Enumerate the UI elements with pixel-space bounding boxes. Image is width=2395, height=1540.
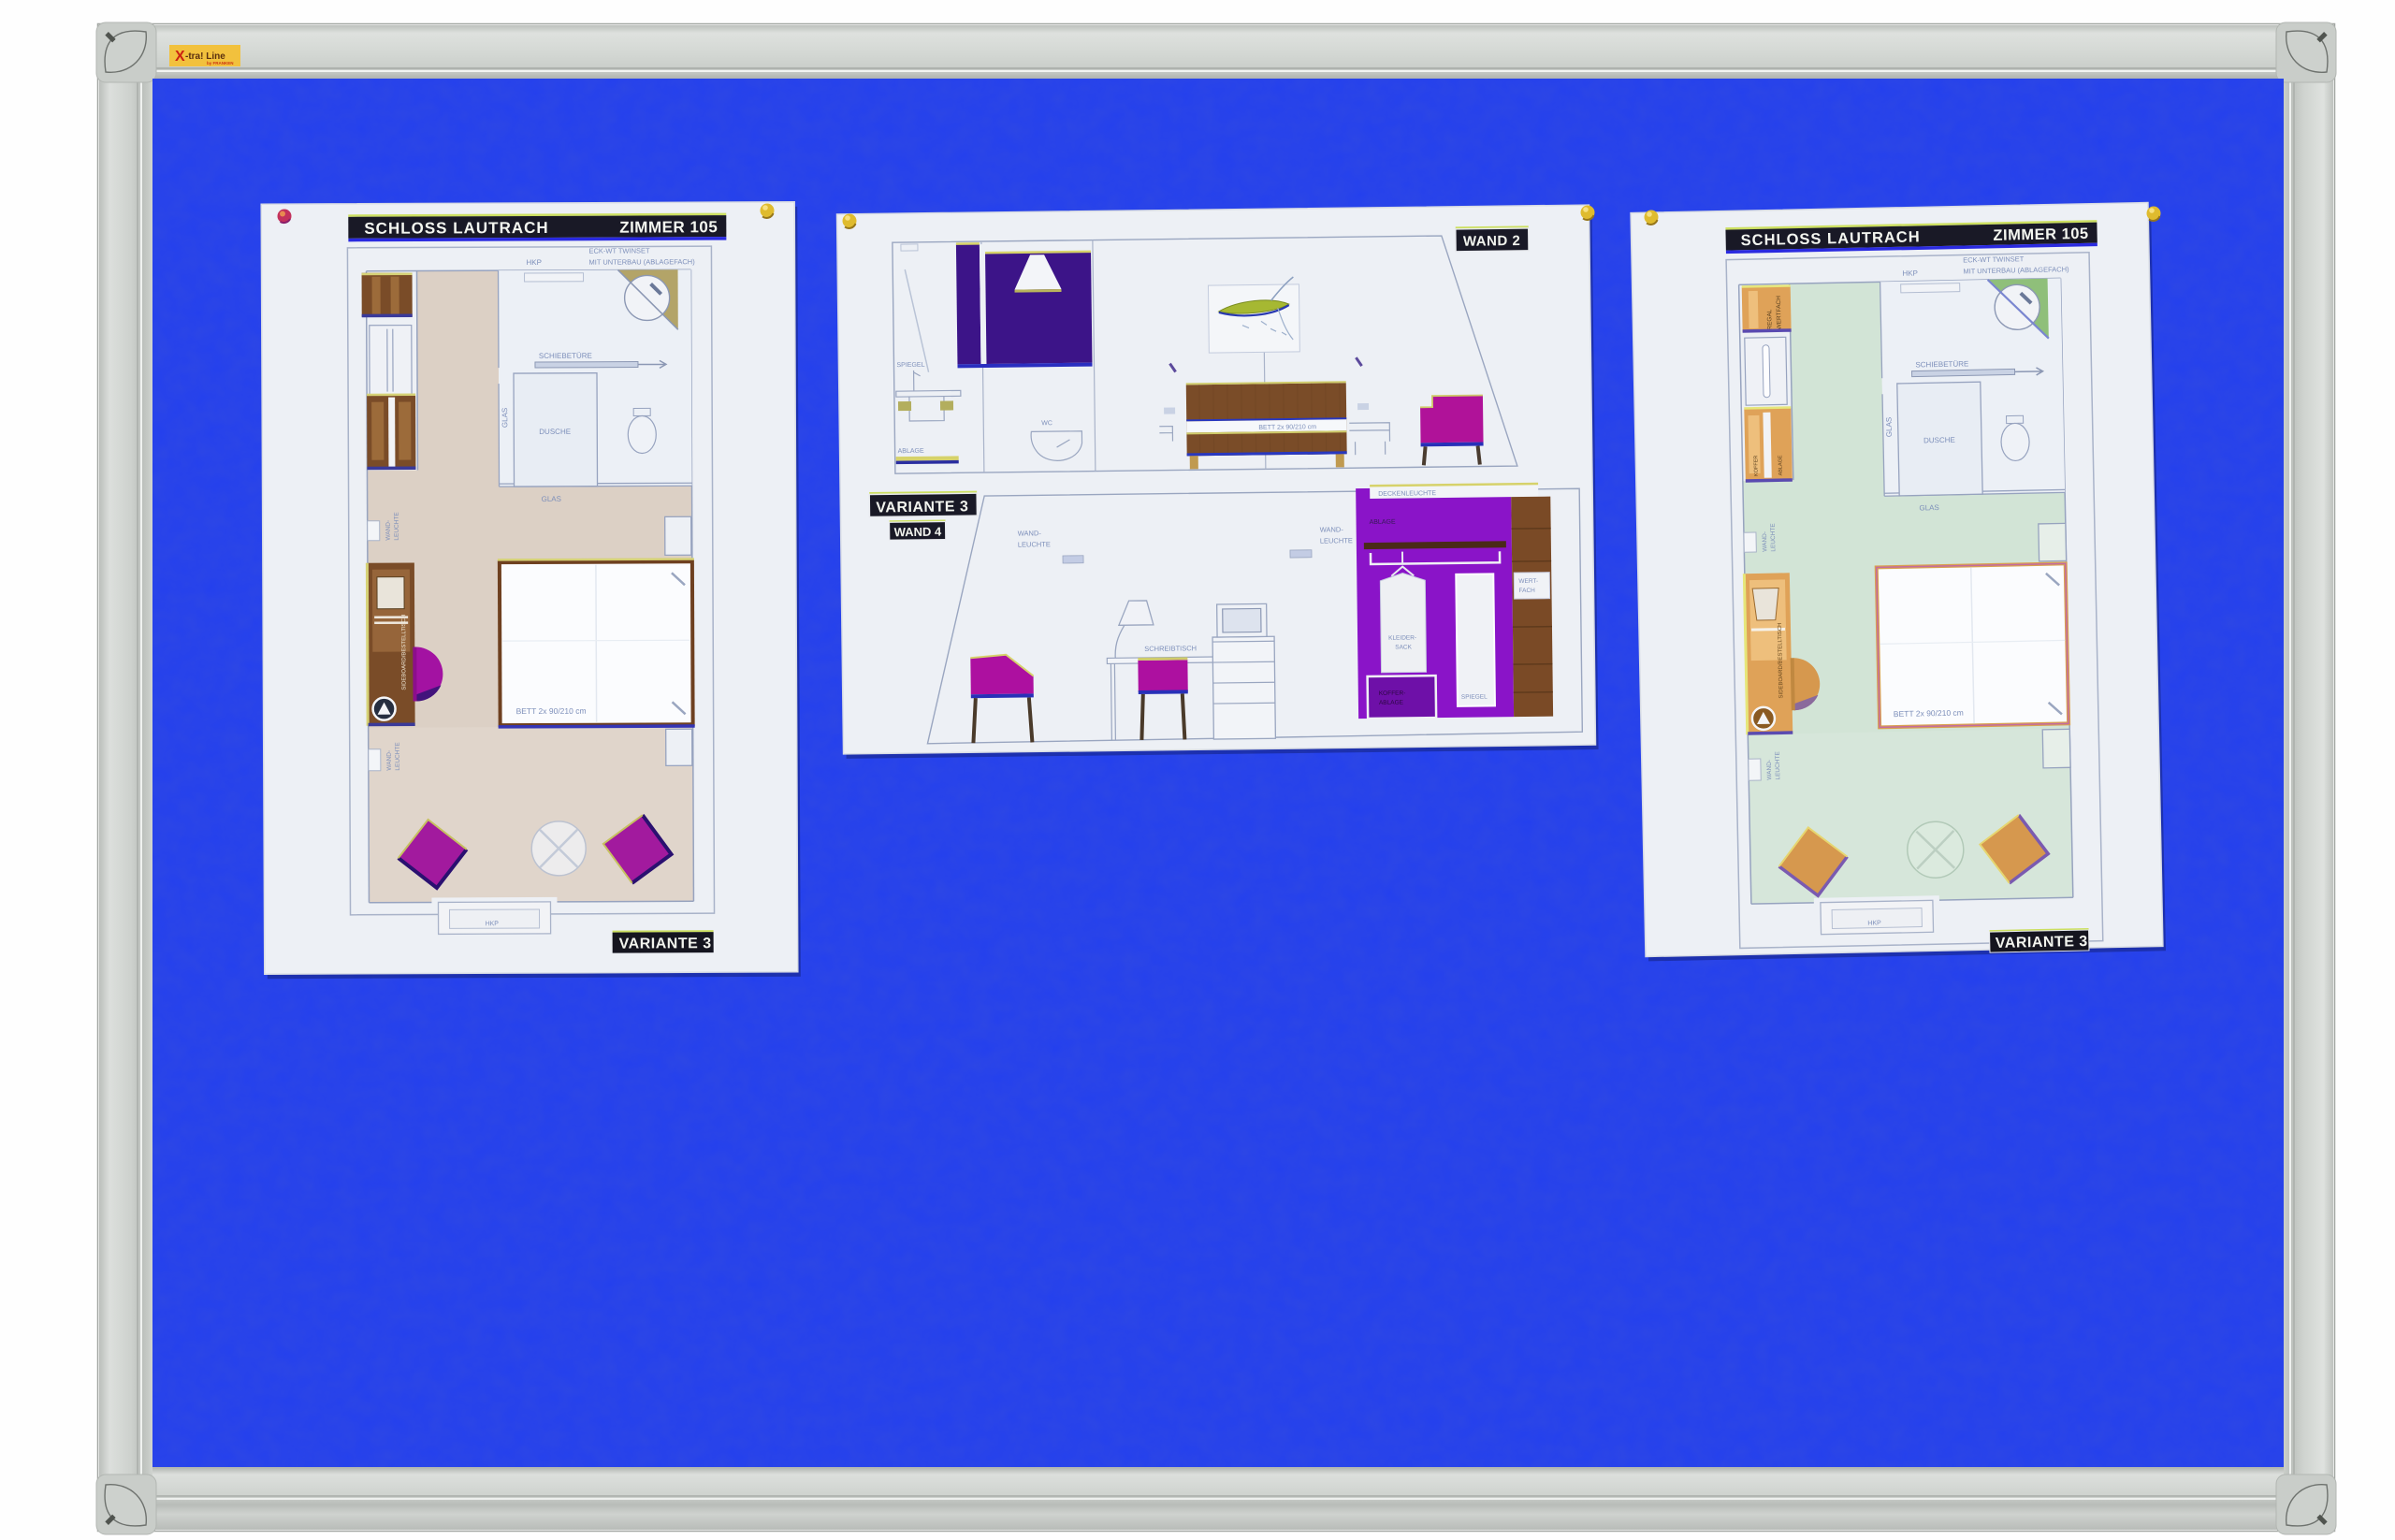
svg-text:ABLAGE: ABLAGE <box>1379 700 1404 706</box>
svg-text:SCHLOSS LAUTRACH: SCHLOSS LAUTRACH <box>364 219 548 238</box>
svg-text:GLAS: GLAS <box>542 495 561 503</box>
svg-text:LEUCHTE: LEUCHTE <box>394 512 400 541</box>
svg-text:KOFFER-: KOFFER- <box>1379 690 1406 697</box>
svg-text:FACH: FACH <box>1518 588 1535 594</box>
svg-text:WAND-: WAND- <box>1766 760 1773 780</box>
svg-text:WAND-: WAND- <box>1018 529 1042 537</box>
svg-text:ZIMMER 105: ZIMMER 105 <box>619 218 718 236</box>
svg-text:DECKENLEUCHTE: DECKENLEUCHTE <box>1378 490 1436 498</box>
svg-text:WAND-: WAND- <box>1320 525 1344 533</box>
svg-text:KOFFER: KOFFER <box>1753 456 1759 476</box>
svg-text:SPIEGEL: SPIEGEL <box>896 362 924 369</box>
svg-text:WAND-: WAND- <box>386 750 393 771</box>
svg-text:X: X <box>175 49 185 65</box>
svg-text:SCHREIBTISCH: SCHREIBTISCH <box>1144 644 1197 653</box>
svg-text:LEUCHTE: LEUCHTE <box>395 742 401 771</box>
svg-text:VARIANTE 3: VARIANTE 3 <box>1996 934 2088 952</box>
svg-text:DUSCHE: DUSCHE <box>539 428 571 436</box>
svg-text:HKP: HKP <box>1902 269 1918 277</box>
svg-text:LEUCHTE: LEUCHTE <box>1770 523 1778 552</box>
svg-text:BETT 2x 90/210 cm: BETT 2x 90/210 cm <box>1258 424 1316 431</box>
svg-text:MIT UNTERBAU (ABLAGEFACH): MIT UNTERBAU (ABLAGEFACH) <box>588 257 695 266</box>
svg-text:KLEIDER-: KLEIDER- <box>1388 634 1416 641</box>
svg-text:BETT 2x 90/210 cm: BETT 2x 90/210 cm <box>1894 708 1964 719</box>
svg-text:WAND-: WAND- <box>1762 531 1768 552</box>
svg-text:HKP: HKP <box>526 258 541 267</box>
svg-text:ZIMMER 105: ZIMMER 105 <box>1993 225 2089 244</box>
svg-text:LEUCHTE: LEUCHTE <box>1775 751 1782 780</box>
svg-text:SCHIEBETÜRE: SCHIEBETÜRE <box>1915 359 1968 369</box>
svg-text:HKP: HKP <box>486 921 500 927</box>
svg-text:ECK-WT TWINSET: ECK-WT TWINSET <box>1963 254 2025 264</box>
svg-text:WAND 2: WAND 2 <box>1463 233 1521 250</box>
svg-text:GLAS: GLAS <box>1885 417 1894 438</box>
svg-text:SPIEGEL: SPIEGEL <box>1461 693 1488 700</box>
svg-text:VARIANTE 3: VARIANTE 3 <box>619 936 712 952</box>
svg-text:BETT 2x 90/210 cm: BETT 2x 90/210 cm <box>516 706 587 716</box>
svg-text:SIDEBOARD/BESTELLTISCH: SIDEBOARD/BESTELLTISCH <box>401 615 407 690</box>
svg-text:WAND-: WAND- <box>385 520 392 541</box>
svg-text:GLAS: GLAS <box>1919 503 1939 512</box>
svg-text:ECK-WT TWINSET: ECK-WT TWINSET <box>588 246 650 254</box>
svg-text:VARIANTE 3: VARIANTE 3 <box>876 499 968 516</box>
svg-text:SCHIEBETÜRE: SCHIEBETÜRE <box>539 352 592 360</box>
svg-text:DUSCHE: DUSCHE <box>1923 436 1955 445</box>
svg-text:LEUCHTE: LEUCHTE <box>1320 536 1353 545</box>
svg-text:WERT-: WERT- <box>1518 578 1538 585</box>
svg-text:ABLAGE: ABLAGE <box>898 448 924 455</box>
svg-text:WAND 4: WAND 4 <box>894 525 943 540</box>
svg-text:WERTFACH: WERTFACH <box>1776 296 1783 330</box>
svg-text:GLAS: GLAS <box>501 408 509 428</box>
svg-text:by FRANKEN: by FRANKEN <box>207 61 234 65</box>
svg-text:HKP: HKP <box>1867 920 1881 926</box>
svg-text:ABLAGE: ABLAGE <box>1778 455 1783 475</box>
svg-text:ABLAGE: ABLAGE <box>1370 519 1396 526</box>
svg-text:SACK: SACK <box>1395 644 1412 650</box>
svg-text:WC: WC <box>1041 420 1052 427</box>
svg-text:LEUCHTE: LEUCHTE <box>1018 540 1051 548</box>
svg-text:SCHLOSS LAUTRACH: SCHLOSS LAUTRACH <box>1741 228 1921 249</box>
svg-text:REGAL: REGAL <box>1766 309 1773 330</box>
